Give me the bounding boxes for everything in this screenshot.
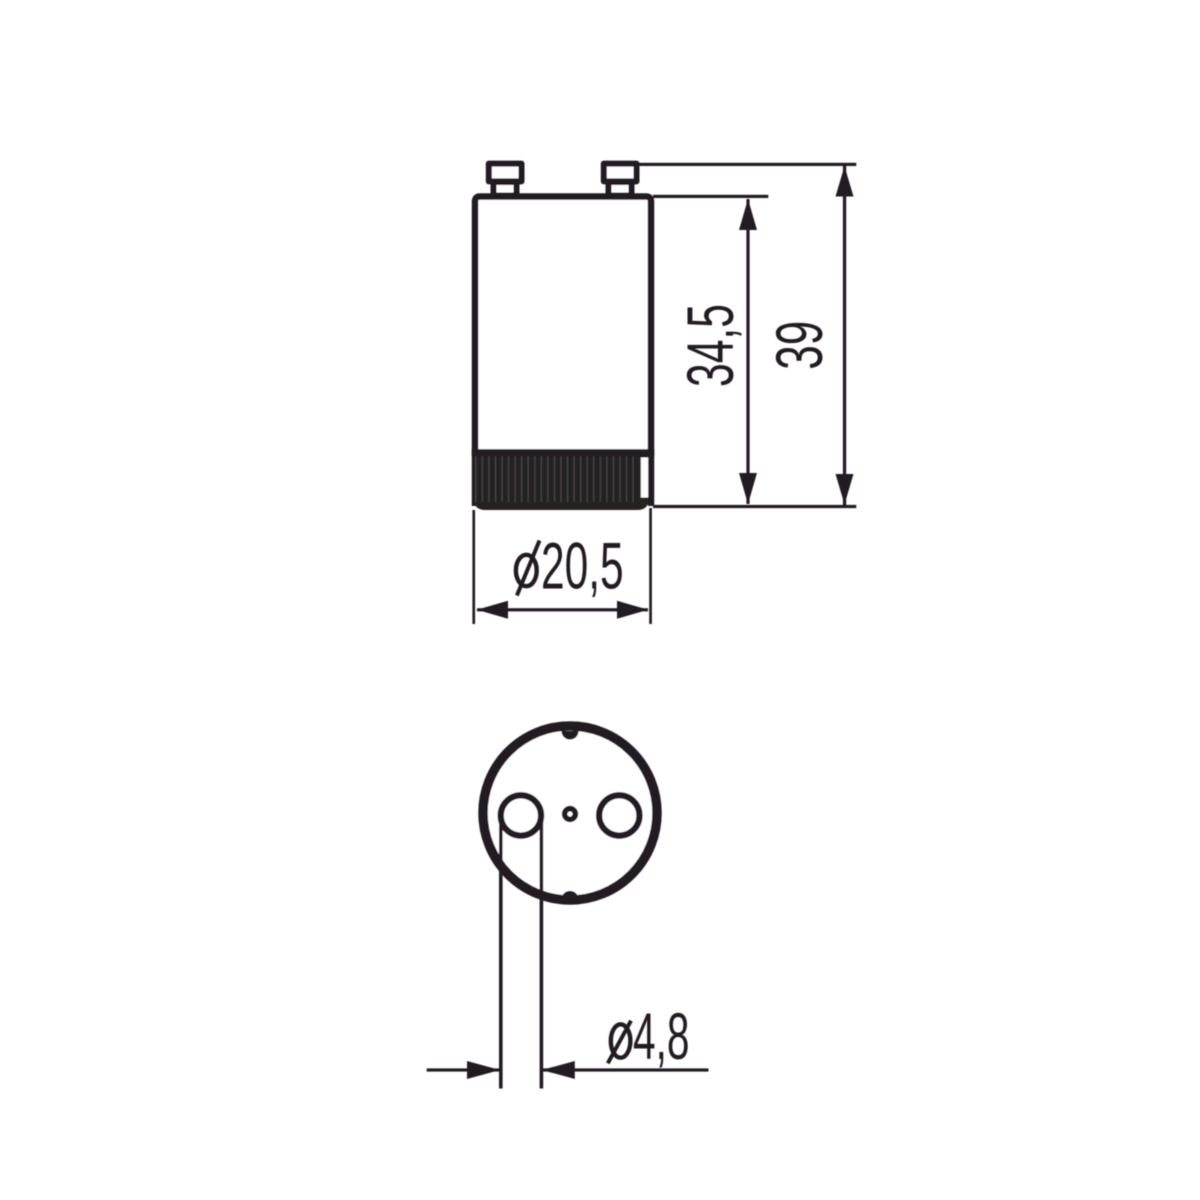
svg-text:20,5: 20,5 bbox=[541, 529, 624, 603]
svg-text:4,8: 4,8 bbox=[633, 999, 690, 1073]
svg-text:39: 39 bbox=[762, 321, 836, 370]
svg-text:34,5: 34,5 bbox=[673, 304, 747, 387]
